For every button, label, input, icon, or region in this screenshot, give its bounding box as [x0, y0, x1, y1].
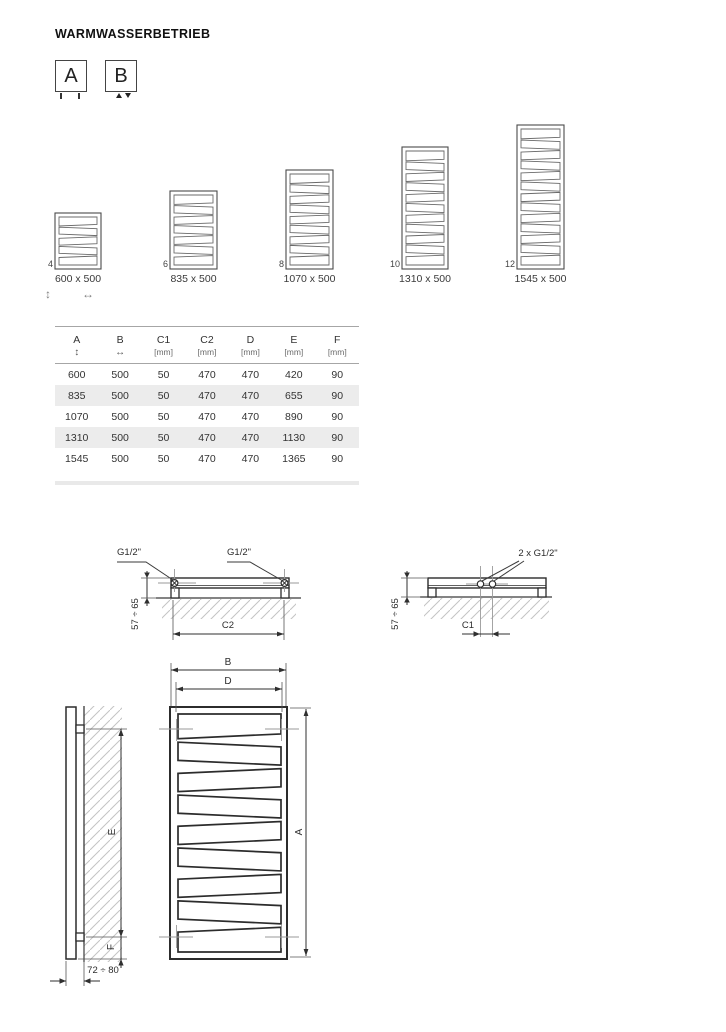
g12-right-label: G1/2" [222, 547, 256, 558]
drawing-front-view [159, 663, 311, 959]
leader-g12-left [117, 562, 173, 580]
collector-bar [428, 578, 546, 588]
bracket-left [428, 588, 436, 597]
slat [178, 874, 281, 897]
connection-port-right-icon [489, 581, 495, 587]
side-span-f-label: F [106, 940, 118, 954]
slat [178, 714, 281, 739]
bracket-top [76, 725, 84, 733]
bracket-right [281, 588, 289, 598]
side-depth-label: 72 ÷ 80 [78, 965, 128, 976]
slat [178, 769, 281, 792]
g12-left-label: G1/2" [112, 547, 146, 558]
bracket-bottom [76, 933, 84, 941]
2xg12-label: 2 x G1/2" [510, 548, 566, 559]
c2-dim-label: C2 [216, 620, 240, 631]
datasheet-page: WARMWASSERBETRIEB A B 4600 x 5006835 x 5… [0, 0, 726, 1032]
bracket-left [171, 588, 179, 598]
slat [178, 822, 281, 845]
c1-dim-label: C1 [456, 620, 480, 631]
front-height-a-label: A [294, 825, 306, 839]
side-span-e-label: E [107, 825, 119, 839]
front-width-d-label: D [222, 676, 234, 687]
wall-hatch [162, 599, 296, 619]
slat [178, 927, 281, 952]
technical-drawings [0, 0, 726, 1032]
connection-port-left-icon [477, 581, 483, 587]
wall-distance-right-label: 57 ÷ 65 [390, 591, 402, 637]
panel-profile [66, 707, 76, 959]
radiator-slats [178, 714, 281, 952]
slat [178, 742, 281, 765]
bracket-right [538, 588, 546, 597]
drawing-side-connections [117, 562, 301, 640]
slat [178, 848, 281, 871]
wall-hatch [424, 598, 549, 619]
slat [178, 795, 281, 818]
wall-distance-left-label: 57 ÷ 65 [130, 591, 142, 637]
slat [178, 901, 281, 924]
front-width-b-label: B [222, 657, 234, 668]
